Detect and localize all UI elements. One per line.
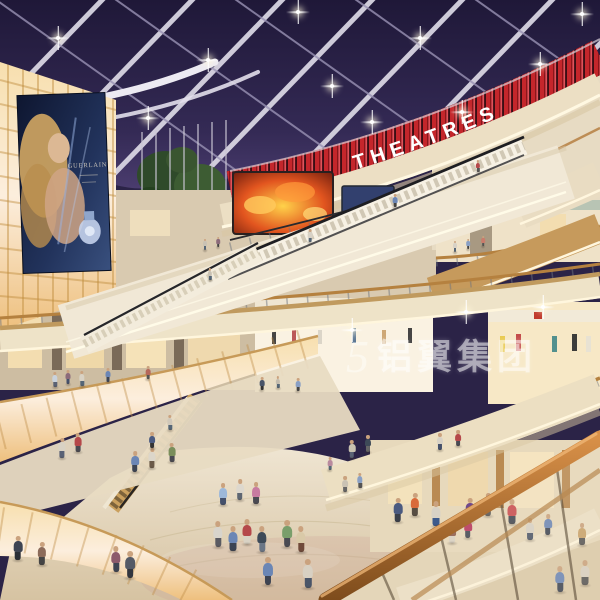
starburst-light bbox=[206, 58, 210, 62]
starburst-light bbox=[370, 120, 374, 124]
billboard-brand-text: GUERLAIN bbox=[68, 161, 108, 169]
starburst-light bbox=[330, 84, 334, 88]
starburst-light bbox=[56, 36, 60, 40]
scene-architecture: THEATRES bbox=[0, 0, 600, 600]
starburst-light bbox=[464, 310, 468, 314]
starburst-light bbox=[350, 328, 354, 332]
starburst-light bbox=[538, 62, 542, 66]
starburst-light bbox=[296, 10, 300, 14]
starburst-light bbox=[580, 12, 584, 16]
starburst-light bbox=[146, 116, 150, 120]
starburst-light bbox=[541, 305, 545, 309]
mall-atrium-rendering: THEATRES bbox=[0, 0, 600, 600]
starburst-light bbox=[460, 110, 464, 114]
perfume-billboard: GUERLAIN bbox=[17, 93, 111, 274]
starburst-light bbox=[418, 36, 422, 40]
